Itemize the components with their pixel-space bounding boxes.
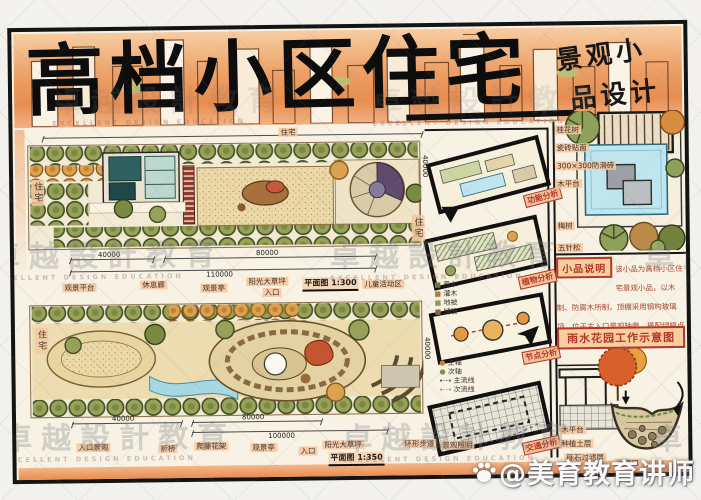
note-item: 地被 [443, 299, 457, 307]
legend-item: 主轴 [448, 359, 462, 367]
plan2-dim-mid: 80000 [242, 413, 264, 421]
plan1-dim-right: 80000 [256, 249, 278, 257]
legend-dot: ● [439, 368, 445, 376]
planting-notes: ■ 乔木 ■ 灌木 ■ 地被 ■ 铺装 [434, 281, 457, 317]
description-title: 小品说明 [556, 257, 612, 279]
plan1-top-dimension-line [43, 133, 423, 139]
note-bullet: ■ [435, 308, 442, 316]
plan1-callout: 观景亭 [200, 284, 227, 293]
flow-arrow-down [441, 203, 459, 223]
legend-arrow: ⇠⇢ [440, 377, 452, 385]
legend-dot: ● [439, 359, 445, 367]
plan1-dim-left: 40000 [98, 251, 120, 259]
presentation-board: 高档小区住宅 景观小 品设计 住宅 住宅 住宅 40000 [7, 20, 693, 484]
plan2-callout: 入口 [298, 446, 317, 455]
plan1-callout: 观景平台 [62, 283, 96, 292]
plan2-callout: 爬藤花架 [194, 442, 228, 451]
plan1-left-label: 住宅 [31, 180, 44, 206]
plan1-callout: 入口 [262, 288, 281, 297]
site-plan-2 [29, 299, 424, 420]
detail-callout: 梅树 [556, 221, 575, 230]
rain-callout: 种植土层 [559, 439, 593, 448]
plan2-callout: 景观照明 [440, 440, 474, 449]
plan2-dim-left: 40000 [112, 415, 134, 423]
description-block: 小品说明 该小品为高档小区住宅景观小品，以木制、防腐木所制，顶棚采用钢构玻璃顶，… [556, 256, 687, 324]
paw-icon [471, 460, 497, 484]
note-item: 灌木 [443, 290, 457, 298]
plan2-callout: 观景亭 [250, 443, 277, 452]
detail-callout: 桂花树 [554, 125, 581, 134]
plan2-left-label: 住宅 [35, 328, 48, 354]
plan1-dim-total: 110000 [206, 270, 233, 278]
plan1-right-label: 住宅 [412, 215, 425, 241]
legend-item: 次轴 [448, 368, 462, 376]
flow-arrow-up-right [517, 326, 539, 348]
detail-callout: 木平台 [555, 179, 582, 188]
plan2-callout: 折桥 [158, 444, 177, 453]
plan2-callout: 入口景观 [76, 443, 110, 452]
plan2-callout: 环形步道 [402, 439, 436, 448]
plan2-callout: 阳光大草坪 [322, 440, 364, 450]
plan1-callout: 休息廊 [140, 280, 167, 289]
detail-bottom-rule [554, 252, 686, 256]
note-item: 铺装 [444, 308, 458, 316]
subtitle: 景观小 品设计 [555, 32, 674, 111]
plan1-side-dimension: 40000 [421, 155, 429, 177]
site-plan-1 [27, 139, 422, 252]
note-bullet: ■ [434, 290, 441, 298]
credit-watermark: @美育教育讲师 [471, 452, 695, 491]
legend-arrow: ⇠⇢ [440, 386, 452, 394]
subtitle-line2: 品设计 [568, 69, 675, 116]
detail-callout: 300×300防滑砖 [555, 161, 617, 171]
rain-callout: 木平台 [559, 425, 586, 434]
rain-garden-title: 雨水花园工作示意图 [557, 326, 685, 350]
plan1-callout: 儿童活动区 [362, 279, 404, 289]
axis-legend: ● 主轴 ● 次轴 ⇠⇢ 主流线 ⇠⇢ 次流线 [439, 358, 474, 394]
note-bullet: ■ [435, 299, 442, 307]
plan2-dim-right: 100000 [268, 432, 295, 440]
watermark-en: EXCELLENT DESIGN EDUCATION [7, 272, 224, 283]
detail-callout: 瓷砖贴面 [555, 143, 589, 152]
plan1-top-label: 住宅 [278, 128, 297, 137]
detail-callout: 五针松 [556, 243, 583, 252]
credit-text: @美育教育讲师 [499, 452, 695, 491]
legend-item: 次流线 [454, 385, 475, 393]
plan1-scale-note: 平面图 1:300 [302, 277, 358, 292]
watermark-en: EXCELLENT DESIGN EDUCATION [7, 453, 236, 464]
legend-item: 主流线 [454, 376, 475, 384]
note-bullet: ■ [434, 281, 441, 289]
note-item: 乔木 [443, 281, 457, 289]
plan1-callout: 阳光大草坪 [246, 277, 288, 287]
left-marker-band [14, 130, 26, 280]
plan2-side-dimension: 40000 [423, 337, 431, 359]
plan2-scale-note: 平面图 1:350 [328, 452, 384, 467]
